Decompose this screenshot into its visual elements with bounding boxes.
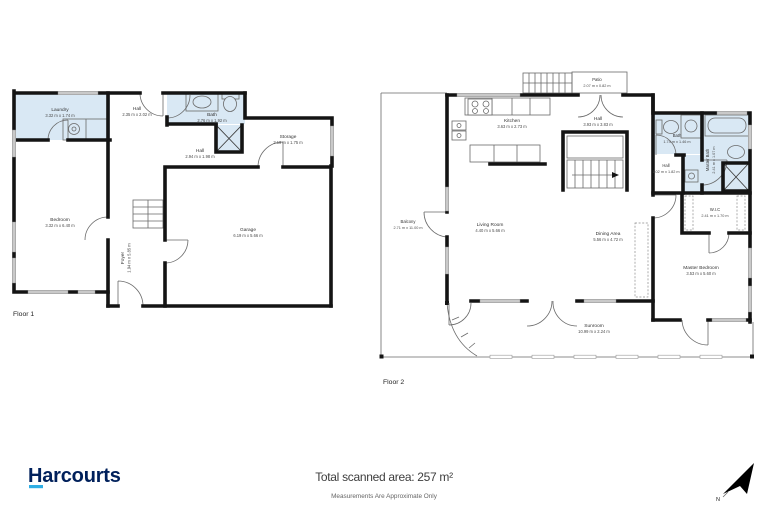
floor2-patio-stairs-icon [523, 72, 627, 93]
floor2-hall-small-dims: 1.02 m x 1.82 m [652, 170, 679, 174]
floor1-laundry-dims: 3.32 m x 1.74 m [45, 113, 75, 118]
total-area-text: Total scanned area: 257 m² [315, 470, 453, 484]
floor2-balcony-dims: 2.71 m x 11.00 m [393, 226, 422, 230]
floor1-garage-dims: 6.19 m x 5.66 m [233, 233, 263, 238]
floor1-title: Floor 1 [13, 311, 34, 318]
floor2-patio-dims: 2.07 m x 0.82 m [583, 84, 610, 88]
floor1-hall-top-dims: 2.35 m x 2.02 m [122, 112, 152, 117]
floor2-dining-area-dims: 5.56 m x 4.72 m [593, 237, 623, 242]
floor1-storage-dims: 3.19 m x 1.75 m [273, 140, 303, 145]
floor2-hall-small-label: Hall [662, 163, 669, 168]
floor2-wic-label: W.I.C [710, 207, 720, 212]
floor2-kitchen-dims: 3.63 m x 2.73 m [497, 124, 527, 129]
north-arrow: N [716, 463, 754, 503]
floor2-balcony-label: Balcony [401, 219, 417, 224]
floor1-foyer-label: Foyer [120, 251, 126, 264]
floor1-bedroom-dims: 3.32 m x 6.40 m [45, 223, 75, 228]
logo-underline [29, 485, 43, 488]
floor2-central-stairs-icon [567, 136, 623, 188]
floor2-title: Floor 2 [383, 379, 404, 386]
floor2-kitchen-fixtures [452, 98, 550, 162]
floor2-wic-dims: 2.41 m x 1.70 m [701, 214, 728, 218]
floor2-living-room-dims: 4.40 m x 5.66 m [475, 228, 505, 233]
floor2-sunroom-dims: 10.99 m x 2.24 m [578, 329, 610, 334]
floor2-master-bath-label: Master Bath [705, 148, 710, 171]
floor2-hall-dims: 3.93 m x 3.83 m [583, 122, 613, 127]
floor1-hall-mid-dims: 2.94 m x 1.98 m [185, 154, 215, 159]
brand-logo: Harcourts [28, 465, 121, 487]
floor1-foyer-dims: 1.94 m x 5.85 m [127, 243, 132, 273]
disclaimer-text: Measurements Are Approximate Only [331, 493, 438, 500]
north-arrow-icon [723, 463, 754, 494]
floor1-bath-dims: 2.76 m x 1.92 m [197, 118, 227, 123]
footer: Harcourts Total scanned area: 257 m² Mea… [28, 463, 754, 503]
floor2-plan: Patio 2.07 m x 0.82 m Kitchen 3.63 m x 2… [380, 72, 755, 386]
north-label: N [716, 497, 720, 503]
floor2-master-bedroom-dims: 3.53 m x 5.60 m [686, 271, 716, 276]
floor2-bath-label: Bath [673, 133, 682, 138]
floor2-master-bath-dims: 2.41 m x 1.07 m [712, 146, 716, 173]
floor1-stairs-icon [133, 200, 163, 228]
floor1-plan: Laundry 3.32 m x 1.74 m Hall 2.35 m x 2.… [12, 91, 334, 318]
floor2-patio-label: Patio [592, 77, 602, 82]
floor2-bath-dims: 1.74 m x 1.46 m [663, 140, 690, 144]
floorplan-canvas: Laundry 3.32 m x 1.74 m Hall 2.35 m x 2.… [0, 0, 768, 512]
